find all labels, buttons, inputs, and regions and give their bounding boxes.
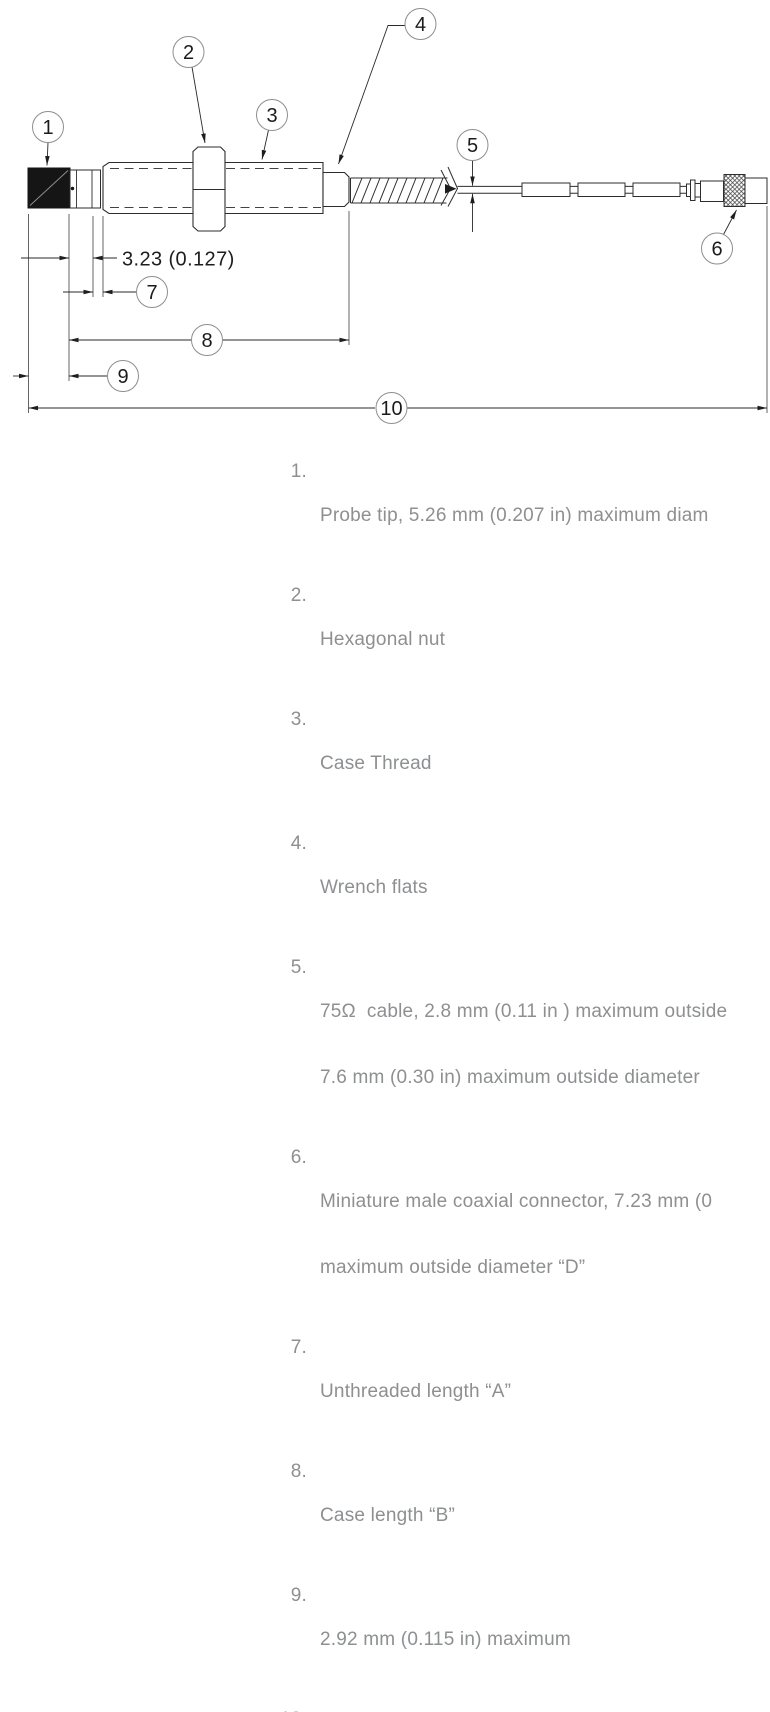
callout-6-number: 6 (711, 239, 722, 261)
legend-item-text: Probe tip, 5.26 mm (0.207 in) maximum di… (320, 461, 709, 571)
technical-drawing: 3.23 (0.127) 1 2 3 4 5 6 (0, 0, 770, 445)
legend-item-6: 6. Miniature male coaxial connector, 7.2… (0, 1147, 770, 1323)
legend-item-number: 10. (0, 1709, 307, 1712)
callout-10-number: 10 (380, 398, 402, 420)
legend: 1. Probe tip, 5.26 mm (0.207 in) maximum… (0, 461, 770, 1712)
sleeve-1 (522, 183, 570, 197)
legend-item-9: 9. 2.92 mm (0.115 in) maximum (0, 1585, 770, 1695)
callout-10: 10 (29, 393, 768, 424)
legend-item-text: Hexagonal nut (320, 585, 445, 695)
sleeve-3 (633, 183, 680, 197)
callout-9: 9 (13, 361, 139, 392)
connector-knurl (724, 175, 745, 207)
legend-item-number: 3. (0, 709, 307, 819)
callout-2-number: 2 (183, 42, 194, 64)
callout-5-number: 5 (467, 135, 478, 157)
callout-1: 1 (33, 112, 64, 166)
hex-nut (193, 147, 225, 231)
wrench-flats (323, 173, 349, 207)
callout-7: 7 (63, 277, 168, 308)
callout-3: 3 (257, 100, 288, 160)
legend-item-2: 2. Hexagonal nut (0, 585, 770, 695)
connector-barrel (745, 178, 767, 204)
legend-item-4: 4. Wrench flats (0, 833, 770, 943)
callout-1-number: 1 (42, 117, 53, 139)
legend-item-text: Wrench flats (320, 833, 428, 943)
coaxial-connector (687, 175, 768, 207)
legend-item-8: 8. Case length “B” (0, 1461, 770, 1571)
legend-item-text: 75Ω cable, 2.8 mm (0.11 in ) maximum out… (320, 957, 727, 1133)
callout-8-number: 8 (201, 330, 212, 352)
dimension-3-23: 3.23 (0.127) (21, 249, 235, 271)
legend-item-number: 6. (0, 1147, 307, 1323)
unthreaded-section (70, 170, 101, 208)
cable-armor (351, 167, 458, 207)
legend-item-text: Unthreaded length “A” (320, 1337, 511, 1447)
probe-tip (28, 168, 101, 208)
legend-item-3: 3. Case Thread (0, 709, 770, 819)
callout-3-number: 3 (266, 105, 277, 127)
cable-sleeves (522, 183, 680, 197)
legend-item-5: 5. 75Ω cable, 2.8 mm (0.11 in ) maximum … (0, 957, 770, 1133)
legend-item-text: 2.92 mm (0.115 in) maximum (320, 1585, 571, 1695)
callout-4-number: 4 (415, 14, 426, 36)
sleeve-2 (578, 183, 625, 197)
callout-6: 6 (702, 210, 737, 264)
callout-4: 4 (339, 9, 437, 165)
legend-item-text: Case length “B” (320, 1461, 455, 1571)
legend-item-number: 2. (0, 585, 307, 695)
dimension-3-23-label: 3.23 (0.127) (122, 249, 235, 271)
legend-item-number: 4. (0, 833, 307, 943)
legend-item-text: Total length “C”, +30%, -0% (320, 1709, 558, 1712)
legend-item-10: 10. Total length “C”, +30%, -0% (0, 1709, 770, 1712)
legend-item-text: Miniature male coaxial connector, 7.23 m… (320, 1147, 712, 1323)
legend-item-number: 1. (0, 461, 307, 571)
callout-9-number: 9 (117, 366, 128, 388)
tip-dot (71, 187, 74, 190)
extension-lines (29, 206, 768, 413)
legend-item-number: 8. (0, 1461, 307, 1571)
figure: 3.23 (0.127) 1 2 3 4 5 6 (0, 0, 770, 445)
callout-8: 8 (69, 325, 349, 356)
connector-backshell (701, 181, 724, 202)
armor-hatch (352, 178, 443, 203)
legend-item-1: 1. Probe tip, 5.26 mm (0.207 in) maximum… (0, 461, 770, 571)
legend-item-text: Case Thread (320, 709, 432, 819)
legend-item-7: 7. Unthreaded length “A” (0, 1337, 770, 1447)
callout-2: 2 (173, 37, 205, 144)
callout-5: 5 (457, 130, 488, 233)
callout-7-number: 7 (146, 282, 157, 304)
legend-item-number: 9. (0, 1585, 307, 1695)
legend-item-number: 5. (0, 957, 307, 1133)
legend-item-number: 7. (0, 1337, 307, 1447)
